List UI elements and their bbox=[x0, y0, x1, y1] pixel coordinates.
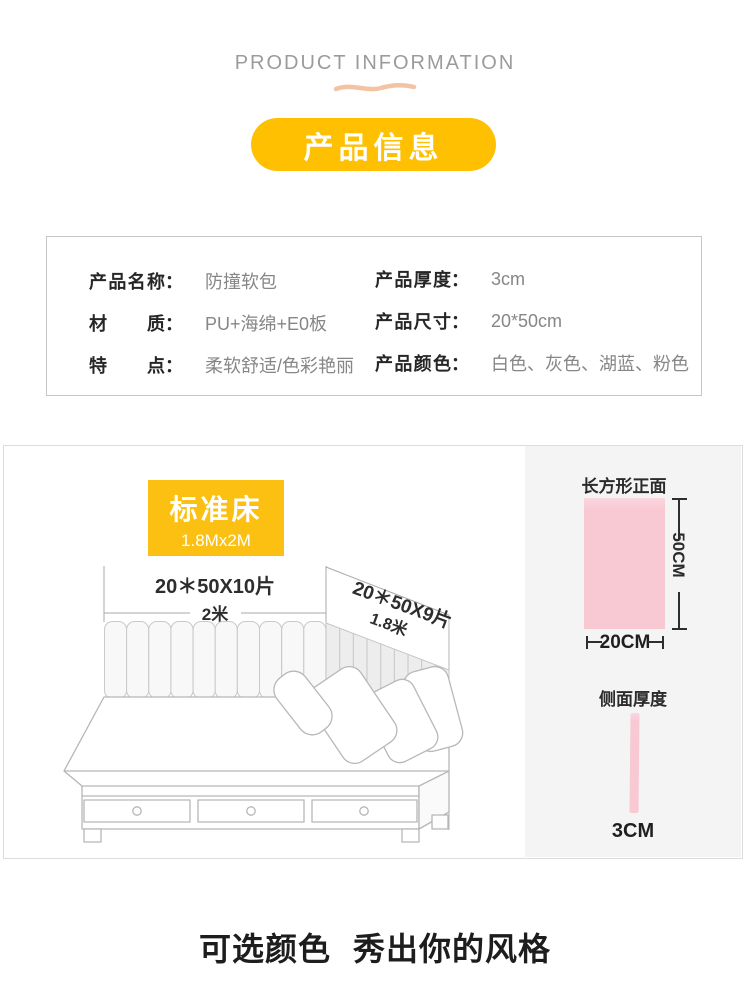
spec-label: 材质 bbox=[89, 310, 165, 336]
spec-value: 白色、灰色、湖蓝、粉色 bbox=[491, 350, 689, 376]
panel-preview: 长方形正面 50CM 20CM 侧面厚度 3CM bbox=[525, 446, 741, 857]
spec-value: PU+海绵+E0板 bbox=[205, 310, 327, 336]
height-dimension-cap bbox=[672, 628, 687, 630]
wave-decoration bbox=[333, 81, 417, 93]
badge-title: 标准床 bbox=[148, 488, 284, 528]
badge-subtitle: 1.8Mx2M bbox=[148, 531, 284, 551]
spec-colon: ： bbox=[165, 310, 183, 336]
back-wall-dimension-label: 20＊50X10片 bbox=[155, 575, 275, 598]
width-label: 20CM bbox=[595, 632, 655, 654]
spec-label: 产品厚度 bbox=[375, 266, 451, 292]
spec-row-colors: 产品颜色： 白色、灰色、湖蓝、粉色 bbox=[375, 350, 689, 376]
product-info-badge: 产品信息 bbox=[251, 118, 496, 171]
width-dimension-tick bbox=[662, 636, 664, 649]
side-view-title: 侧面厚度 bbox=[525, 685, 741, 710]
spec-colon: ： bbox=[165, 268, 183, 294]
front-view-rectangle bbox=[584, 498, 665, 629]
thickness-label: 3CM bbox=[525, 820, 741, 843]
spec-value: 防撞软包 bbox=[205, 268, 277, 294]
height-label: 50CM bbox=[670, 524, 688, 586]
product-information-page: PRODUCT INFORMATION 产品信息 产品名称： 防撞软包 材质： … bbox=[0, 0, 750, 1001]
spec-label: 产品名称 bbox=[89, 268, 165, 294]
spec-row-features: 特点： 柔软舒适/色彩艳丽 bbox=[89, 352, 354, 378]
spec-colon: ： bbox=[451, 350, 469, 376]
spec-row-size: 产品尺寸： 20*50cm bbox=[375, 308, 562, 334]
spec-row-thickness: 产品厚度： 3cm bbox=[375, 266, 525, 292]
diagram-box: 20＊50X10片 2米 20＊50X9片 1.8米 bbox=[3, 445, 743, 859]
spec-label: 产品颜色 bbox=[375, 350, 451, 376]
thickness-strip bbox=[629, 713, 639, 813]
spec-value: 20*50cm bbox=[491, 311, 562, 332]
spec-colon: ： bbox=[451, 308, 469, 334]
spec-row-material: 材质： PU+海绵+E0板 bbox=[89, 310, 327, 336]
spec-label: 产品尺寸 bbox=[375, 308, 451, 334]
width-dimension-line bbox=[648, 641, 662, 643]
spec-box: 产品名称： 防撞软包 材质： PU+海绵+E0板 特点： 柔软舒适/色彩艳丽 产… bbox=[46, 236, 702, 396]
spec-value: 柔软舒适/色彩艳丽 bbox=[205, 352, 354, 378]
front-view-title: 长方形正面 bbox=[525, 472, 723, 497]
spec-label: 特点 bbox=[89, 352, 165, 378]
footer-headline: 可选颜色 秀出你的风格 bbox=[0, 924, 750, 970]
eyebrow-title: PRODUCT INFORMATION bbox=[0, 52, 750, 75]
spec-row-product-name: 产品名称： 防撞软包 bbox=[89, 268, 277, 294]
bed-size-badge: 标准床 1.8Mx2M bbox=[148, 480, 284, 556]
spec-value: 3cm bbox=[491, 269, 525, 290]
spec-colon: ： bbox=[165, 352, 183, 378]
spec-colon: ： bbox=[451, 266, 469, 292]
height-dimension-line bbox=[678, 592, 680, 630]
